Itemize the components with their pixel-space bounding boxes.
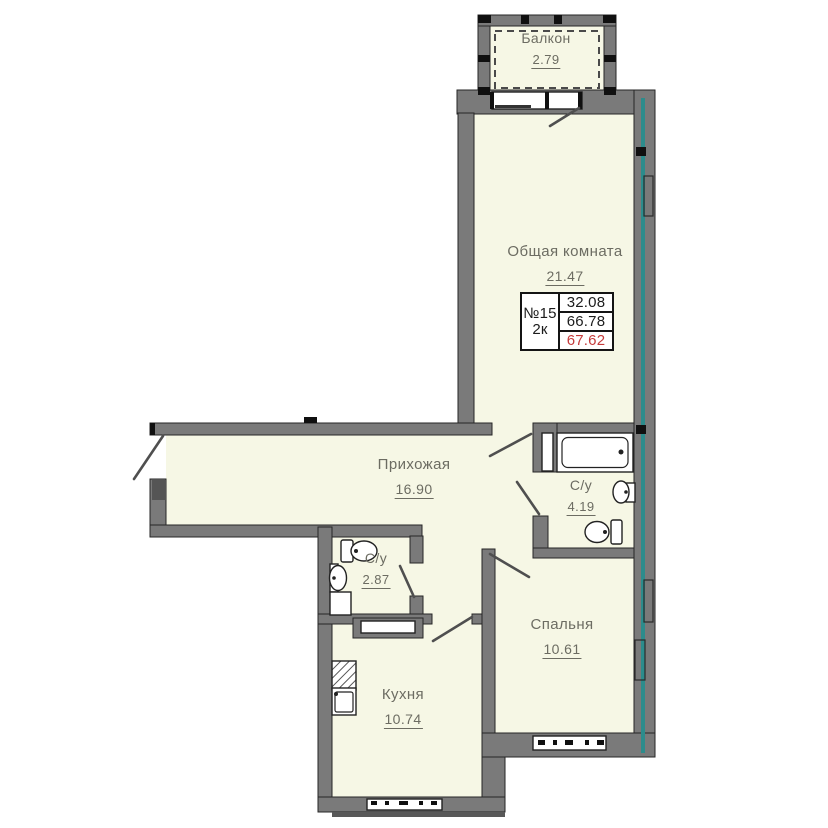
bedroom-door-opening — [494, 548, 535, 558]
usable-area-value: 66.78 — [560, 311, 612, 330]
wall-hallway-bottom — [150, 525, 422, 537]
room-name: Общая комната — [507, 244, 622, 261]
room-area: 10.74 — [383, 711, 422, 729]
balcony-corner-tick — [603, 15, 616, 23]
hallway-corridor-floor — [422, 525, 482, 617]
sink-faucet — [624, 490, 628, 494]
toilet-detail — [354, 549, 358, 553]
room-name: Спальня — [530, 617, 593, 634]
stove — [332, 661, 356, 690]
window-tick — [399, 801, 408, 805]
wall-living-left — [458, 113, 474, 424]
sink — [330, 566, 347, 591]
window-tick — [553, 740, 557, 745]
wall-balcony-top — [478, 15, 616, 26]
room-label-living: Общая комната 21.47 — [507, 244, 622, 284]
room-area: 4.19 — [567, 499, 596, 516]
wall-hallway-top — [150, 423, 492, 435]
room-label-kitchen: Кухня 10.74 — [382, 687, 424, 727]
room-label-bedroom: Спальня 10.61 — [530, 617, 593, 657]
balcony-rail-tick — [554, 15, 562, 24]
balcony-corner-tick — [478, 15, 491, 23]
balcony-rail-tick — [478, 55, 490, 62]
window-tick — [431, 801, 437, 805]
window-jamb — [578, 92, 582, 109]
room-name: С/у — [567, 478, 596, 493]
panel-joint — [636, 425, 646, 434]
hallway-floor — [166, 434, 535, 526]
balcony-corner-tick — [478, 87, 490, 95]
window-tick — [585, 740, 589, 745]
room-label-balcony: Балкон 2.79 — [521, 31, 570, 67]
floor-fills — [166, 25, 635, 798]
window-tick — [419, 801, 423, 805]
total-area-value: 67.62 — [560, 330, 612, 349]
toilet-tank — [611, 520, 622, 544]
apartment-info-table: №15 2к 32.08 66.78 67.62 — [520, 292, 614, 351]
room-name: С/у — [362, 551, 391, 566]
toilet-detail — [603, 530, 607, 534]
window-tick — [385, 801, 389, 805]
room-area: 16.90 — [394, 481, 433, 499]
living-area-value: 32.08 — [560, 294, 612, 311]
hallway-wall-endcap — [150, 423, 155, 435]
wall-kitchen-bottom-edge — [332, 812, 505, 817]
vent-shaft — [361, 621, 415, 633]
room-name: Балкон — [521, 31, 570, 46]
window-sill — [495, 105, 531, 108]
window-tick — [538, 740, 545, 745]
room-name: Прихожая — [378, 457, 451, 474]
room-label-bathroom: С/у 4.19 — [567, 478, 596, 514]
room-area: 2.79 — [532, 52, 561, 69]
sink-faucet — [332, 576, 336, 580]
cabinet — [330, 592, 351, 615]
panel-joint — [636, 147, 646, 156]
wall-wc-right-upper — [410, 536, 423, 563]
room-name: Кухня — [382, 687, 424, 704]
balcony-rail-tick — [521, 15, 529, 24]
wall-kitchen-door-stub — [472, 614, 482, 624]
entry-door-swing — [134, 436, 163, 479]
apartment-number-cell: №15 2к — [522, 294, 560, 349]
window-jamb — [490, 92, 494, 109]
hallway-wall-tick — [304, 417, 317, 423]
bathtub-drain — [619, 450, 624, 455]
apartment-number: №15 — [523, 306, 556, 322]
room-area: 10.61 — [542, 641, 581, 659]
apartment-areas-cell: 32.08 66.78 67.62 — [560, 294, 612, 349]
window-jamb — [545, 92, 549, 109]
room-area: 21.47 — [545, 268, 584, 286]
room-area: 2.87 — [362, 572, 391, 589]
balcony-rail-tick — [604, 55, 616, 62]
wall-bathroom-bottom — [533, 548, 634, 558]
apartment-type: 2к — [532, 322, 547, 338]
floor-plan: Балкон 2.79 Общая комната 21.47 Прихожая… — [0, 0, 828, 828]
living-room-opening — [492, 423, 533, 435]
room-label-hallway: Прихожая 16.90 — [378, 457, 451, 497]
window-tick — [565, 740, 573, 745]
entry-door-jamb — [152, 480, 166, 500]
balcony-corner-tick — [604, 87, 616, 95]
wall-bathroom-left-lower — [533, 516, 548, 549]
window-tick — [597, 740, 604, 745]
bathroom-duct — [542, 433, 553, 471]
kitchen-sink-faucet — [334, 692, 338, 696]
wall-kitchen-bedroom-divider — [482, 549, 495, 752]
room-label-wc: С/у 2.87 — [362, 551, 391, 587]
window-tick — [371, 801, 377, 805]
